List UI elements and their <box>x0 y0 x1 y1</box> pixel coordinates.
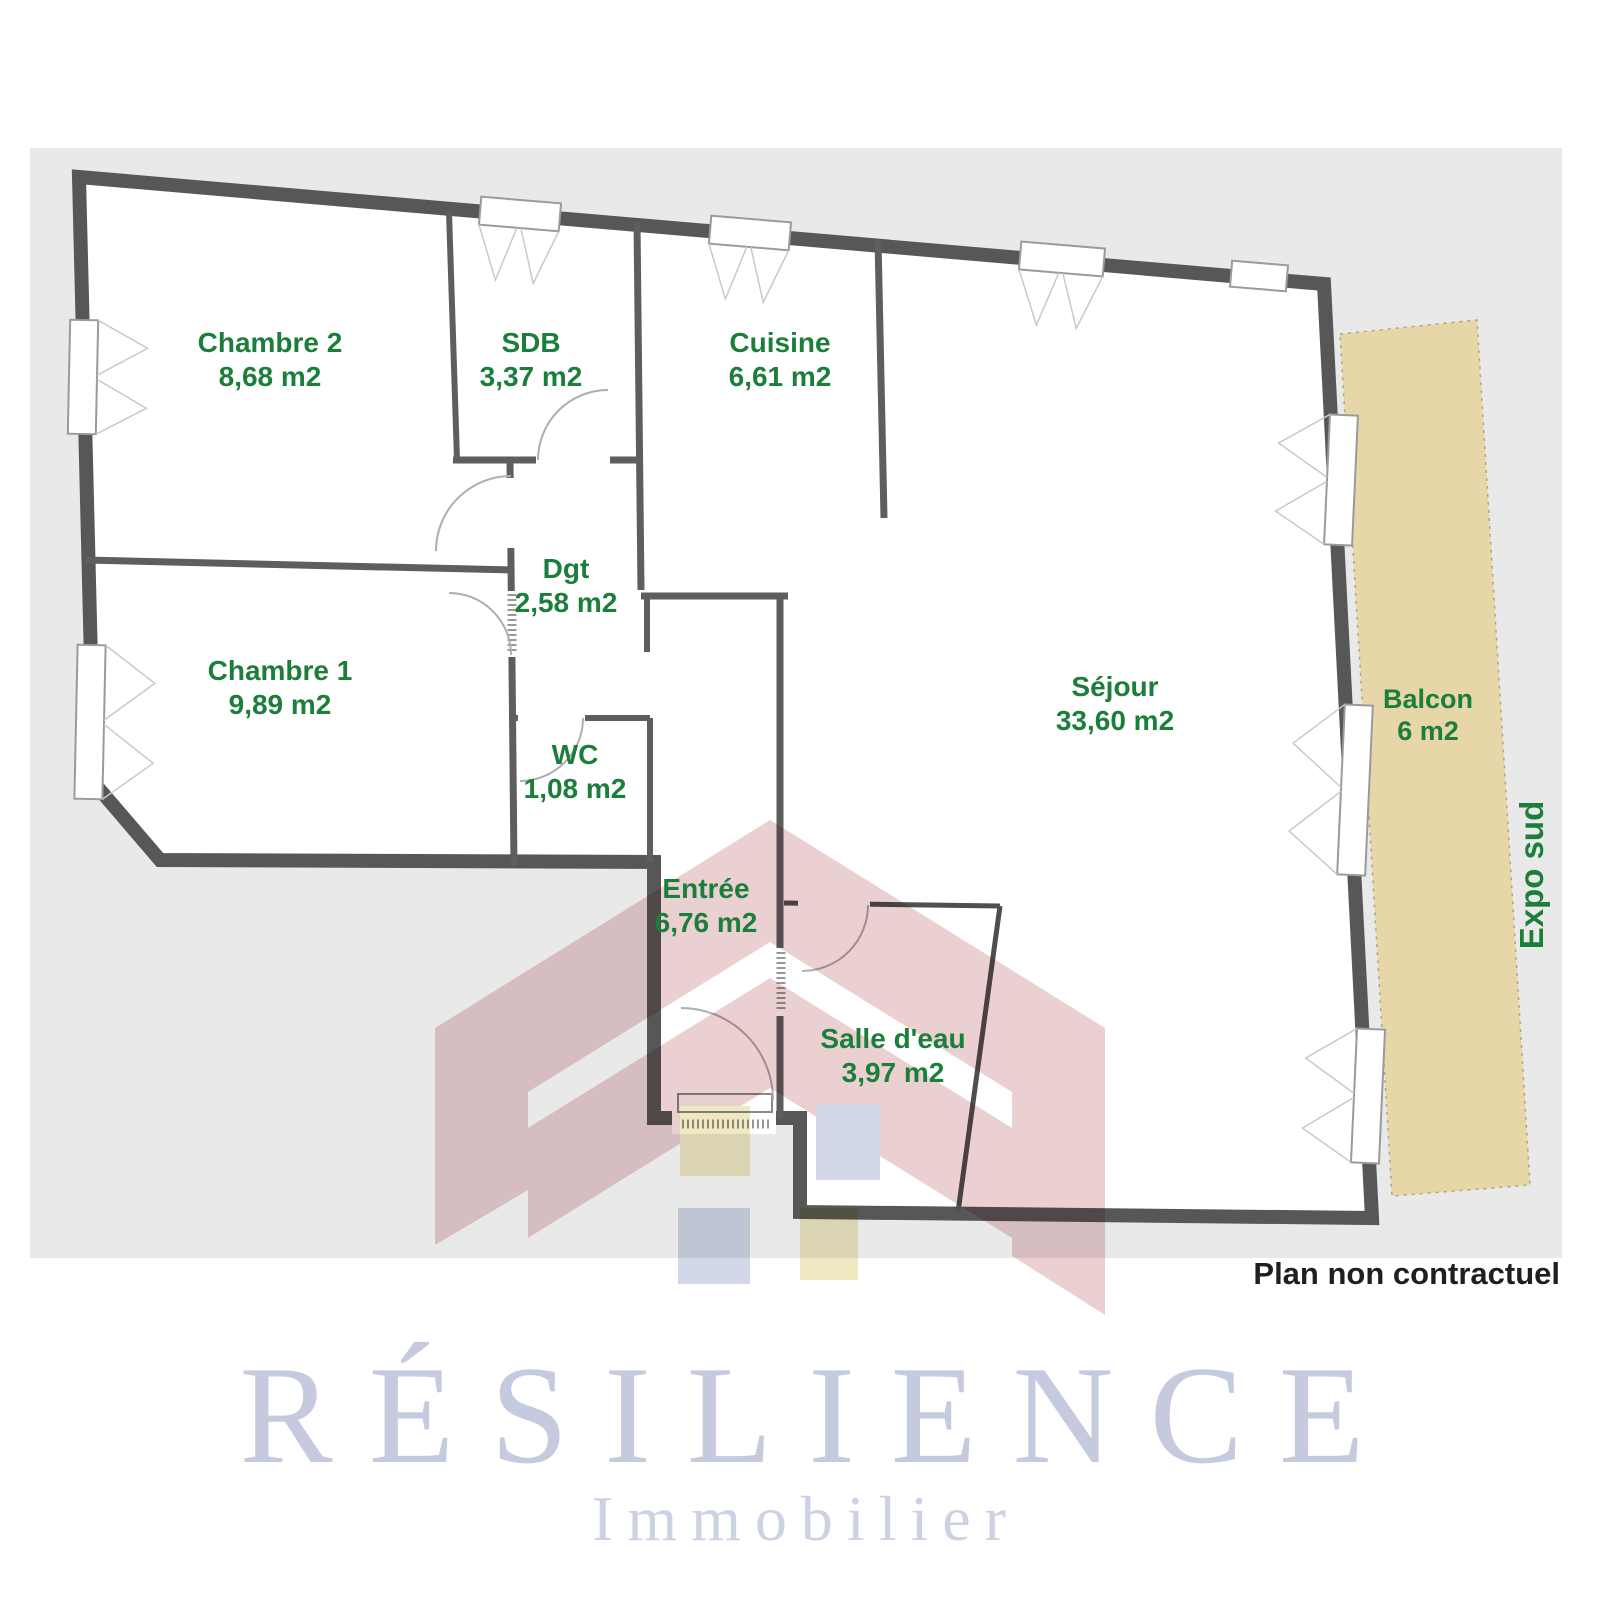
wall-cuisine-left <box>637 222 641 590</box>
room-area-wc: 1,08 m2 <box>524 773 627 804</box>
exposure-label: Expo sud <box>1513 801 1550 950</box>
room-label-balcon: Balcon <box>1383 684 1473 714</box>
room-area-sdb: 3,37 m2 <box>480 361 583 392</box>
room-label-chambre1: Chambre 1 <box>208 655 353 686</box>
branding: RÉSILIENCE Immobilier <box>239 1338 1400 1554</box>
watermark-square-yellow <box>800 1208 858 1280</box>
room-area-entree: 6,76 m2 <box>655 907 758 938</box>
brand-tagline: Immobilier <box>592 1483 1020 1554</box>
room-label-cuisine: Cuisine <box>729 327 830 358</box>
room-label-sejour: Séjour <box>1071 671 1158 702</box>
room-label-sdb: SDB <box>501 327 560 358</box>
room-area-chambre2: 8,68 m2 <box>219 361 322 392</box>
floor-plan: Chambre 2 8,68 m2 SDB 3,37 m2 Cuisine 6,… <box>0 0 1600 1600</box>
room-label-wc: WC <box>552 739 599 770</box>
brand-name: RÉSILIENCE <box>239 1338 1400 1493</box>
room-label-chambre2: Chambre 2 <box>198 327 343 358</box>
room-area-salledeau: 3,97 m2 <box>842 1057 945 1088</box>
room-area-sejour: 33,60 m2 <box>1056 705 1174 736</box>
room-area-chambre1: 9,89 m2 <box>229 689 332 720</box>
room-label-dgt: Dgt <box>543 553 590 584</box>
watermark-square-blue <box>816 1104 880 1180</box>
room-area-dgt: 2,58 m2 <box>515 587 618 618</box>
room-label-entree: Entrée <box>662 873 749 904</box>
watermark-square-blue <box>678 1208 750 1284</box>
disclaimer-text: Plan non contractuel <box>1253 1256 1560 1291</box>
room-label-salledeau: Salle d'eau <box>820 1023 965 1054</box>
room-area-balcon: 6 m2 <box>1397 716 1459 746</box>
watermark-square-yellow <box>680 1106 750 1176</box>
room-area-cuisine: 6,61 m2 <box>729 361 832 392</box>
window-icon <box>1230 261 1288 292</box>
